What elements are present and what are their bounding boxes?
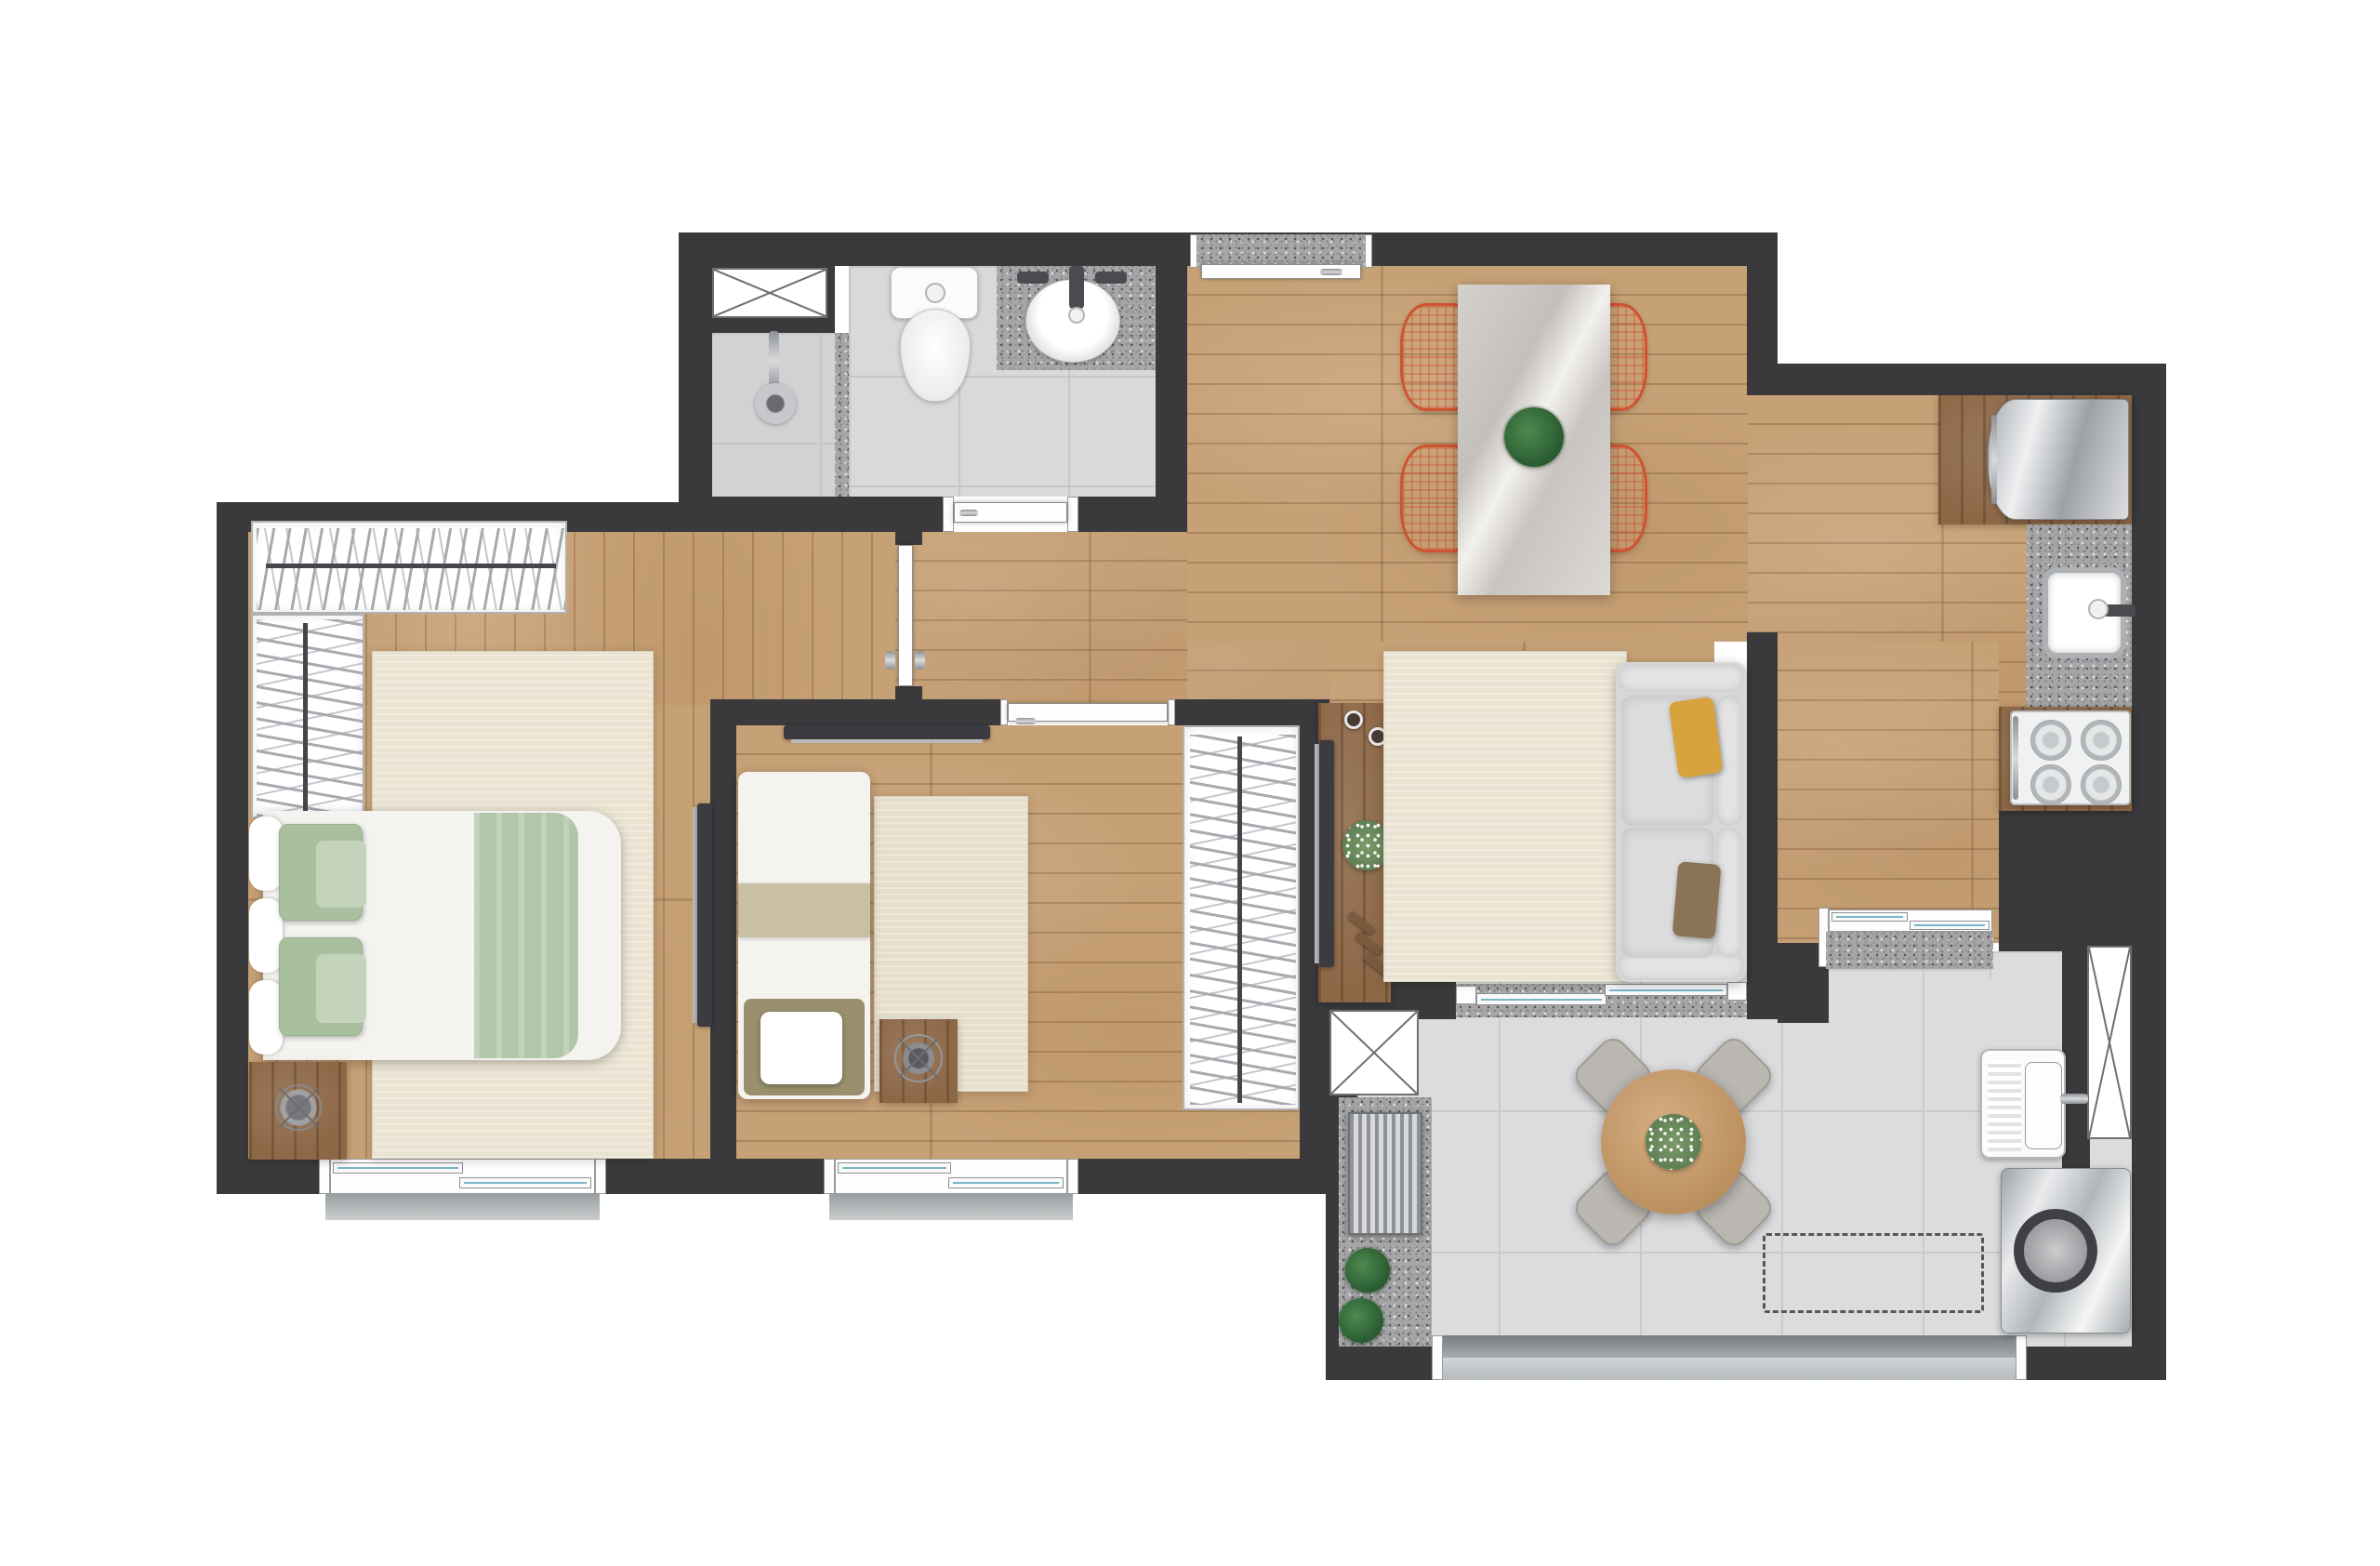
bathroom-door-handle xyxy=(959,510,978,516)
bedroom1-left-wall xyxy=(217,502,248,1194)
laundry-nook-wall xyxy=(2062,951,2090,1172)
bedroom2-closet xyxy=(1183,725,1300,1110)
step-wall-horizontal xyxy=(1778,364,2166,395)
bedroom2-top-wall-left xyxy=(710,699,1008,725)
terrace-plant xyxy=(1339,1298,1383,1343)
bathroom-bottom-wall-right xyxy=(1071,497,1187,532)
bedroom1-wardrobe-side xyxy=(251,614,364,818)
bathroom-left-wall xyxy=(679,232,712,532)
bedroom1-window-jamb-right xyxy=(595,1159,606,1194)
bedroom1-window-sill xyxy=(325,1194,600,1220)
terrace-rail-upper xyxy=(1443,1335,2016,1358)
shower-head xyxy=(755,383,796,424)
terrace-rail-jamb-right xyxy=(2016,1335,2027,1380)
dining-chair xyxy=(1400,445,1461,552)
laundry-nook-floor xyxy=(1990,951,2062,979)
bedroom1-window-pane-1 xyxy=(333,1162,463,1174)
living-rug xyxy=(1383,651,1627,982)
oven-handle xyxy=(2013,716,2018,800)
bedroom2-door-jamb-right xyxy=(1168,699,1175,725)
bedroom2-window-jamb-left xyxy=(824,1159,835,1194)
shaft-cross-lines xyxy=(714,270,826,316)
shower-granite-divider xyxy=(835,333,849,497)
laundry-faucet xyxy=(2060,1094,2088,1104)
bedroom1-tv xyxy=(697,803,712,1027)
living-slider-jamb-right xyxy=(1727,982,1747,1001)
sofa-armrest-top xyxy=(1618,664,1744,692)
kitchen-slider-pane-2 xyxy=(1910,921,1990,930)
bathroom-faucet xyxy=(1069,266,1084,309)
bbq-grill xyxy=(1348,1112,1422,1235)
entry-threshold xyxy=(1197,234,1365,268)
closet-hangers xyxy=(1190,735,1296,1105)
sofa xyxy=(1616,662,1747,982)
bedroom1-lamp xyxy=(275,1084,322,1131)
living-slider-pane-2 xyxy=(1605,984,1727,996)
bed-throw xyxy=(738,883,870,937)
entry-jamb-right xyxy=(1365,234,1372,268)
terrace-shaft xyxy=(2087,946,2132,1139)
kitchen-slider-sill xyxy=(1826,932,1993,969)
toilet-flush-button xyxy=(925,283,945,303)
entry-door-handle xyxy=(1320,269,1342,275)
future-furniture-outline xyxy=(1763,1233,1984,1313)
fridge-handle xyxy=(1991,415,1997,504)
kitchen-faucet-head xyxy=(2088,599,2109,619)
bedroom1-door-stub-top xyxy=(895,528,922,545)
hallway-floor xyxy=(895,532,1187,705)
bedroom2-door-jamb-left xyxy=(1000,699,1008,725)
stove-burner xyxy=(2030,764,2071,805)
step-wall-vertical xyxy=(1747,232,1778,395)
apartment-floor-plan xyxy=(0,0,2380,1566)
bedroom2-window-jamb-right xyxy=(1067,1159,1078,1194)
kitchen-corridor-floor xyxy=(1778,642,1999,943)
laundry-sink-ribs xyxy=(1988,1060,2021,1151)
bedroom2-fan xyxy=(894,1034,943,1082)
laundry-sink-basin xyxy=(2025,1062,2062,1149)
bedroom2-door-handle xyxy=(1015,718,1036,724)
green-blanket xyxy=(474,813,578,1058)
sofa-pillow-brown xyxy=(1673,861,1722,939)
living-shaft xyxy=(1329,1010,1419,1095)
shower-arm xyxy=(769,331,779,391)
wardrobe-rail xyxy=(266,564,556,568)
bathroom-bottom-wall-left xyxy=(679,497,950,532)
stove-burner xyxy=(2030,720,2071,761)
sofa-back-wall xyxy=(1747,632,1778,1019)
closet-rail xyxy=(1237,737,1242,1103)
sofa-back-cushion xyxy=(1716,828,1742,958)
bathroom-shaft xyxy=(712,268,827,318)
kitchen-slider-pane-1 xyxy=(1831,912,1908,922)
shaft-cross-lines xyxy=(1331,1012,1417,1094)
kitchen-bottom-wall xyxy=(1999,811,2166,951)
bathroom-soap-dish-left xyxy=(1017,272,1049,284)
entry-jamb-left xyxy=(1190,234,1197,268)
bedroom1-window-pane-2 xyxy=(459,1177,591,1188)
shaft-cross-lines xyxy=(2089,948,2130,1137)
hallway-floor-south xyxy=(1187,642,1329,705)
bedroom1-window-jamb-left xyxy=(319,1159,330,1194)
wardrobe-hangers xyxy=(257,528,565,610)
fridge xyxy=(1988,399,2129,520)
bedroom1-wardrobe-top xyxy=(251,521,567,614)
bedroom2-window-pane-2 xyxy=(948,1177,1064,1188)
bathroom-door-jamb-left xyxy=(943,497,954,532)
dining-chair xyxy=(1400,303,1461,411)
stove-burner xyxy=(2081,764,2122,805)
sofa-pillow-yellow xyxy=(1669,697,1724,778)
bedroom2-single-bed xyxy=(738,772,870,1099)
bathroom-door-jamb-right xyxy=(1067,497,1078,532)
bedroom1-double-bed xyxy=(263,811,621,1060)
bedroom2-window-pane-1 xyxy=(838,1162,951,1174)
headboard-cushion xyxy=(249,898,283,973)
bedroom1-door-handle-a xyxy=(885,651,895,670)
bed-pillow xyxy=(760,1012,842,1084)
wardrobe-hangers xyxy=(257,619,363,816)
bedroom2-tv xyxy=(784,725,990,739)
terrace-rail-lower xyxy=(1443,1358,2016,1380)
terrace-table-flowers xyxy=(1646,1114,1701,1170)
rack-cup xyxy=(1344,710,1363,729)
headboard-cushion xyxy=(249,816,283,891)
bedroom1-door-handle-b xyxy=(915,651,925,670)
green-pillow-small xyxy=(316,841,366,908)
bedroom2-window-sill xyxy=(829,1194,1073,1220)
bedroom2-tv-stand-line xyxy=(791,739,983,743)
stove-burner xyxy=(2081,720,2122,761)
bathroom-right-wall xyxy=(1156,232,1187,532)
bathroom-soap-dish-right xyxy=(1095,272,1127,284)
living-tv xyxy=(1319,740,1334,967)
bathroom-faucet-head xyxy=(1068,307,1085,324)
dining-table-plant xyxy=(1504,407,1564,467)
laundry-sink xyxy=(1980,1049,2066,1159)
living-slider-jamb-left xyxy=(1456,986,1476,1004)
terrace-rail-jamb-left xyxy=(1432,1335,1443,1380)
living-slider-pane-1 xyxy=(1476,993,1606,1005)
green-pillow-small xyxy=(316,954,366,1023)
wardrobe-rail xyxy=(303,623,308,813)
terrace-plant xyxy=(1345,1248,1390,1293)
headboard-cushion xyxy=(249,980,283,1055)
washing-machine-door xyxy=(2014,1209,2097,1293)
bedroom1-door-leaf xyxy=(898,545,913,686)
bedroom-divider-wall xyxy=(710,699,736,1194)
